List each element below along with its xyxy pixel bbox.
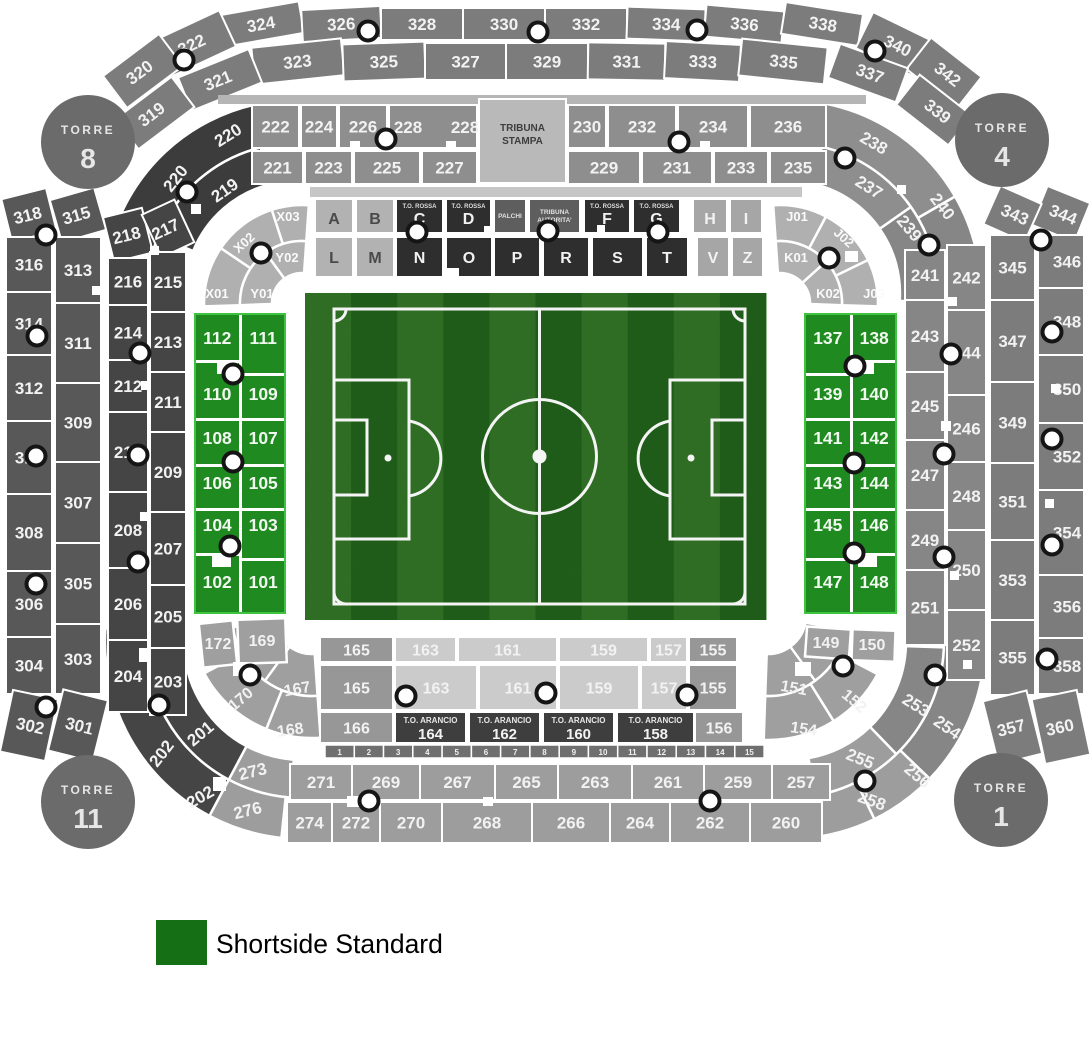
svg-text:227: 227	[435, 159, 463, 178]
svg-text:142: 142	[860, 428, 889, 448]
svg-text:247: 247	[911, 466, 939, 485]
svg-text:234: 234	[699, 118, 728, 137]
svg-text:313: 313	[64, 261, 92, 280]
svg-text:308: 308	[15, 524, 43, 543]
svg-text:T.O. ARANCIO: T.O. ARANCIO	[629, 716, 683, 725]
svg-text:331: 331	[612, 52, 641, 71]
svg-text:TORRE: TORRE	[61, 783, 115, 797]
svg-text:1: 1	[993, 801, 1009, 832]
svg-text:356: 356	[1053, 598, 1081, 617]
svg-text:213: 213	[154, 333, 182, 352]
svg-text:3: 3	[396, 748, 401, 757]
svg-text:139: 139	[813, 384, 842, 404]
svg-text:158: 158	[643, 726, 668, 743]
svg-text:309: 309	[64, 414, 92, 433]
svg-text:X01: X01	[205, 286, 228, 301]
svg-text:216: 216	[114, 273, 142, 292]
svg-text:303: 303	[64, 650, 92, 669]
svg-text:263: 263	[581, 773, 609, 792]
svg-text:252: 252	[952, 636, 980, 655]
svg-text:349: 349	[998, 414, 1026, 433]
svg-text:T: T	[662, 250, 672, 267]
svg-text:J01: J01	[786, 209, 808, 224]
svg-text:105: 105	[249, 473, 278, 493]
svg-text:163: 163	[423, 681, 450, 698]
svg-text:112: 112	[203, 328, 231, 348]
svg-text:235: 235	[784, 159, 812, 178]
svg-text:2: 2	[367, 748, 372, 757]
svg-text:145: 145	[813, 515, 842, 535]
svg-text:9: 9	[572, 748, 577, 757]
svg-text:4: 4	[994, 141, 1010, 172]
svg-text:242: 242	[952, 269, 980, 288]
svg-text:260: 260	[772, 814, 800, 833]
svg-text:15: 15	[745, 748, 754, 757]
svg-text:TORRE: TORRE	[975, 121, 1029, 135]
svg-text:223: 223	[314, 159, 342, 178]
svg-text:264: 264	[626, 814, 655, 833]
svg-text:T.O. ROSSA: T.O. ROSSA	[451, 204, 486, 210]
svg-text:157: 157	[651, 681, 678, 698]
svg-text:13: 13	[686, 748, 695, 757]
svg-text:140: 140	[860, 384, 889, 404]
svg-text:K01: K01	[784, 250, 808, 265]
svg-text:138: 138	[860, 328, 889, 348]
svg-text:107: 107	[249, 428, 278, 448]
svg-text:231: 231	[663, 159, 691, 178]
svg-text:TRIBUNA: TRIBUNA	[500, 123, 545, 134]
svg-text:149: 149	[813, 635, 840, 652]
svg-text:266: 266	[557, 814, 585, 833]
svg-text:B: B	[369, 211, 381, 228]
svg-text:160: 160	[566, 726, 591, 743]
svg-text:P: P	[512, 250, 523, 267]
svg-text:228: 228	[451, 118, 479, 137]
svg-text:327: 327	[451, 53, 479, 72]
svg-text:355: 355	[998, 649, 1026, 668]
svg-text:261: 261	[654, 773, 682, 792]
svg-text:155: 155	[700, 643, 727, 660]
svg-text:150: 150	[859, 637, 886, 654]
svg-text:106: 106	[203, 473, 232, 493]
svg-text:O: O	[463, 250, 475, 267]
svg-text:334: 334	[652, 15, 682, 35]
svg-text:8: 8	[542, 748, 547, 757]
svg-text:228: 228	[394, 118, 422, 137]
svg-text:232: 232	[628, 118, 656, 137]
svg-text:336: 336	[730, 14, 760, 35]
svg-text:312: 312	[15, 379, 43, 398]
svg-text:333: 333	[688, 52, 717, 72]
svg-text:306: 306	[15, 595, 43, 614]
svg-text:Z: Z	[743, 250, 753, 267]
svg-text:137: 137	[813, 328, 842, 348]
svg-text:233: 233	[727, 159, 755, 178]
svg-text:S: S	[612, 250, 623, 267]
svg-text:PALCHI: PALCHI	[498, 213, 522, 220]
svg-text:166: 166	[343, 721, 370, 738]
svg-text:257: 257	[787, 773, 815, 792]
svg-text:156: 156	[706, 721, 733, 738]
svg-text:10: 10	[599, 748, 608, 757]
svg-text:V: V	[708, 250, 719, 267]
svg-text:269: 269	[372, 773, 400, 792]
svg-text:172: 172	[205, 636, 232, 653]
svg-text:J03: J03	[863, 286, 885, 301]
svg-text:270: 270	[397, 814, 425, 833]
svg-text:328: 328	[408, 15, 436, 34]
svg-text:326: 326	[327, 14, 356, 34]
svg-text:6: 6	[484, 748, 489, 757]
svg-text:D: D	[463, 211, 475, 228]
svg-text:T.O. ARANCIO: T.O. ARANCIO	[404, 716, 458, 725]
svg-text:203: 203	[154, 673, 182, 692]
svg-text:224: 224	[305, 118, 334, 137]
svg-text:335: 335	[768, 51, 798, 73]
svg-text:165: 165	[343, 643, 370, 660]
svg-text:265: 265	[512, 773, 540, 792]
svg-text:146: 146	[860, 515, 889, 535]
svg-text:222: 222	[261, 118, 289, 137]
svg-text:103: 103	[249, 515, 278, 535]
svg-text:M: M	[368, 250, 381, 267]
svg-text:TRIBUNA: TRIBUNA	[540, 209, 570, 216]
svg-text:245: 245	[911, 397, 939, 416]
svg-text:T.O. ROSSA: T.O. ROSSA	[590, 204, 625, 210]
svg-text:A: A	[328, 211, 340, 228]
svg-text:267: 267	[443, 773, 471, 792]
svg-text:332: 332	[572, 15, 600, 34]
svg-text:I: I	[744, 211, 748, 228]
svg-text:108: 108	[203, 428, 232, 448]
svg-text:5: 5	[454, 748, 459, 757]
svg-text:259: 259	[724, 773, 752, 792]
svg-text:R: R	[560, 250, 572, 267]
svg-text:347: 347	[998, 332, 1026, 351]
svg-text:268: 268	[473, 814, 501, 833]
svg-text:1: 1	[337, 748, 342, 757]
svg-text:271: 271	[307, 773, 335, 792]
svg-text:226: 226	[349, 118, 377, 137]
svg-text:207: 207	[154, 540, 182, 559]
svg-text:262: 262	[696, 814, 724, 833]
svg-text:163: 163	[412, 643, 439, 660]
svg-text:221: 221	[263, 159, 291, 178]
svg-text:229: 229	[590, 159, 618, 178]
svg-text:144: 144	[860, 473, 889, 493]
svg-text:T.O. ROSSA: T.O. ROSSA	[639, 204, 674, 210]
svg-text:215: 215	[154, 273, 182, 292]
svg-text:316: 316	[15, 256, 43, 275]
svg-text:7: 7	[513, 748, 518, 757]
svg-text:225: 225	[373, 159, 401, 178]
svg-text:248: 248	[952, 487, 980, 506]
svg-text:TORRE: TORRE	[974, 781, 1028, 795]
svg-text:272: 272	[342, 814, 370, 833]
svg-text:208: 208	[114, 521, 142, 540]
svg-text:8: 8	[80, 143, 96, 174]
svg-text:169: 169	[249, 633, 276, 650]
svg-text:345: 345	[998, 259, 1026, 278]
svg-text:205: 205	[154, 608, 182, 627]
svg-text:305: 305	[64, 575, 92, 594]
svg-text:307: 307	[64, 494, 92, 513]
svg-text:STAMPA: STAMPA	[502, 136, 543, 147]
svg-text:311: 311	[64, 334, 91, 353]
svg-text:162: 162	[492, 726, 517, 743]
svg-text:Y02: Y02	[275, 250, 298, 265]
svg-text:110: 110	[203, 384, 231, 404]
svg-text:143: 143	[813, 473, 842, 493]
svg-text:N: N	[414, 250, 426, 267]
svg-text:330: 330	[490, 15, 518, 34]
svg-text:236: 236	[774, 118, 802, 137]
svg-text:251: 251	[911, 599, 939, 618]
svg-text:155: 155	[700, 681, 727, 698]
svg-text:4: 4	[425, 748, 430, 757]
svg-text:147: 147	[813, 572, 842, 592]
svg-text:11: 11	[628, 748, 637, 757]
svg-text:12: 12	[657, 748, 666, 757]
svg-text:148: 148	[860, 572, 889, 592]
svg-text:159: 159	[590, 643, 617, 660]
svg-text:209: 209	[154, 463, 182, 482]
svg-text:Shortside Standard: Shortside Standard	[216, 929, 443, 959]
svg-text:104: 104	[203, 515, 232, 535]
svg-text:353: 353	[998, 571, 1026, 590]
svg-text:246: 246	[952, 420, 980, 439]
svg-text:323: 323	[282, 51, 312, 73]
svg-text:T.O. ARANCIO: T.O. ARANCIO	[478, 716, 532, 725]
svg-text:325: 325	[369, 52, 398, 72]
svg-text:X03: X03	[276, 209, 299, 224]
svg-text:161: 161	[494, 643, 521, 660]
svg-text:243: 243	[911, 327, 939, 346]
svg-text:157: 157	[655, 643, 682, 660]
svg-text:T.O. ARANCIO: T.O. ARANCIO	[552, 716, 606, 725]
svg-text:Y01: Y01	[250, 286, 273, 301]
svg-text:352: 352	[1053, 448, 1081, 467]
svg-text:109: 109	[249, 384, 278, 404]
svg-text:165: 165	[343, 681, 370, 698]
svg-text:211: 211	[154, 393, 181, 412]
svg-text:159: 159	[586, 681, 613, 698]
svg-text:351: 351	[998, 493, 1026, 512]
svg-text:101: 101	[249, 572, 278, 592]
svg-text:H: H	[704, 211, 716, 228]
svg-text:K02: K02	[816, 286, 840, 301]
svg-text:11: 11	[73, 803, 103, 834]
svg-text:230: 230	[573, 118, 601, 137]
svg-text:212: 212	[114, 377, 142, 396]
svg-text:111: 111	[250, 328, 278, 348]
svg-text:141: 141	[813, 428, 842, 448]
svg-text:249: 249	[911, 531, 939, 550]
svg-text:329: 329	[533, 53, 561, 72]
svg-text:204: 204	[114, 667, 143, 686]
svg-text:346: 346	[1053, 253, 1081, 272]
svg-text:TORRE: TORRE	[61, 123, 115, 137]
svg-text:241: 241	[911, 266, 939, 285]
svg-text:102: 102	[203, 572, 232, 592]
svg-text:274: 274	[295, 814, 324, 833]
svg-text:T.O. ROSSA: T.O. ROSSA	[402, 204, 437, 210]
svg-text:214: 214	[114, 324, 143, 343]
svg-text:206: 206	[114, 595, 142, 614]
svg-text:164: 164	[418, 726, 444, 743]
svg-text:161: 161	[505, 681, 532, 698]
svg-text:304: 304	[15, 657, 44, 676]
svg-text:L: L	[329, 250, 339, 267]
svg-text:14: 14	[716, 748, 725, 757]
